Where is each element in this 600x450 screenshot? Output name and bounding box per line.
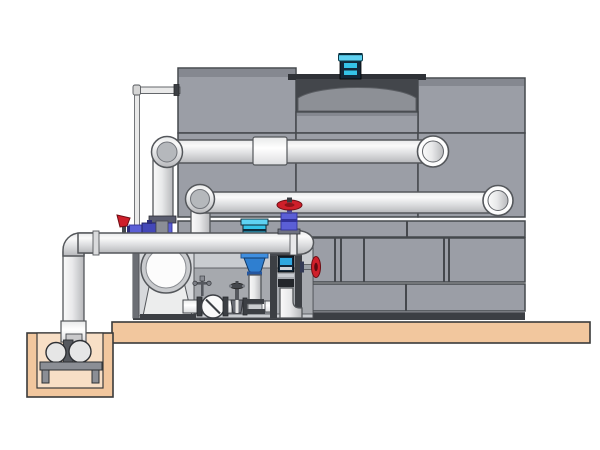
fitting-block — [156, 221, 168, 233]
volute-inlet — [146, 248, 186, 288]
side-valve-flange — [300, 262, 304, 273]
ball-valve-nub — [147, 220, 152, 224]
tank-panel — [178, 68, 296, 133]
pump-base-flange — [246, 299, 264, 304]
skid-left-edge — [133, 244, 139, 318]
pipe1-horizontal — [162, 140, 424, 163]
stand-leg — [42, 370, 49, 383]
pump-column-pipe — [249, 275, 261, 301]
manifold-horizontal — [78, 233, 297, 253]
globe-valve-band — [281, 219, 297, 222]
makeup-elbow — [133, 85, 141, 95]
pipe1-right-elbow-cap — [423, 141, 444, 162]
control-box-screen — [280, 258, 292, 265]
gate-valve-wheel-knob — [229, 284, 232, 287]
makeup-riser — [135, 92, 140, 233]
concrete-slab — [112, 322, 590, 343]
gate-valve-nut — [236, 281, 239, 286]
pipe1-left-elbow-face — [157, 142, 177, 162]
vent-top — [200, 276, 205, 281]
stand-leg — [92, 370, 99, 383]
volute-base — [140, 314, 196, 319]
ball-valve-cap — [127, 226, 130, 233]
cooling-tower-illustration: Technical illustration of a cooling towe… — [0, 0, 600, 450]
makeup-wall-flange — [174, 85, 179, 96]
foundation — [27, 322, 590, 397]
cap-flange-ring — [290, 231, 297, 255]
pump-base-flange — [245, 309, 265, 314]
frame-detail-dark — [278, 279, 294, 287]
illustration-canvas — [0, 0, 600, 450]
control-box-label — [280, 267, 292, 270]
suction-riser — [63, 252, 84, 323]
pipe1-coupling-sleeve — [253, 137, 287, 165]
lever-valve-handle — [117, 215, 130, 227]
control-box — [278, 256, 294, 272]
vent-handle-ball — [207, 281, 211, 285]
globe-valve-nut — [287, 198, 292, 203]
vent-handle-ball — [193, 281, 197, 285]
tank-panel-top-face — [179, 69, 295, 77]
fan-motor-cap-line — [339, 53, 363, 55]
manifold-collar — [93, 231, 99, 255]
fan-motor — [339, 53, 363, 79]
gate-valve-wheel-knob — [242, 284, 245, 287]
pipe2-left-elbow-face — [191, 190, 210, 209]
pump-motor-cap — [241, 219, 268, 225]
tank-panel-top-face — [297, 113, 417, 116]
fan-discharge-cowl — [298, 88, 416, 112]
frame-detail — [278, 274, 294, 277]
tank-panel — [418, 78, 525, 133]
sump-pump-volute-end — [69, 341, 91, 363]
ball-valves — [127, 220, 168, 234]
pipe2-right-elbow-cap — [488, 191, 508, 211]
makeup-horizontal — [137, 87, 180, 94]
stand-top-plate — [40, 362, 102, 370]
sump-pump-motor-end — [46, 343, 66, 363]
fan-motor-stripe — [344, 68, 357, 71]
pump-motor-stripe — [243, 229, 266, 232]
tank-panel-top-face — [419, 79, 524, 86]
pipe2-horizontal — [200, 192, 490, 213]
gate-valve-stem — [235, 288, 239, 300]
globe-valve-hub — [285, 203, 295, 207]
pipe-flange — [223, 297, 228, 316]
side-valve-hub — [314, 263, 318, 271]
gate-valve-slot — [236, 300, 239, 313]
